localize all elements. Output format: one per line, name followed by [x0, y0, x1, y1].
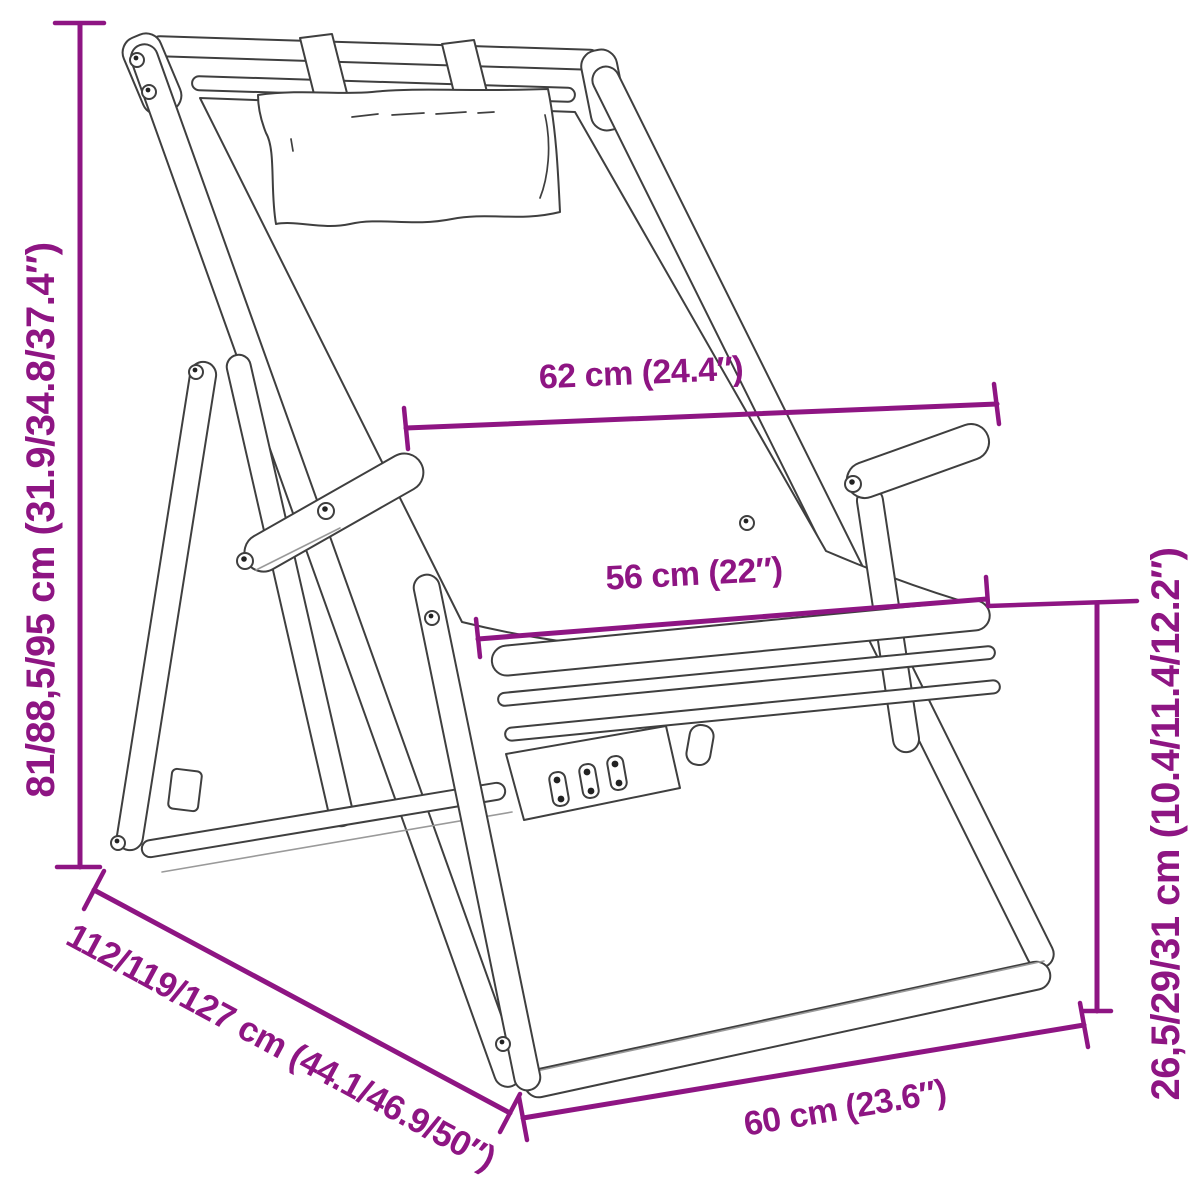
chair-drawing: [111, 28, 1058, 1099]
seat-latch-hook: [685, 723, 716, 767]
headrest-pillow: [258, 89, 560, 226]
chair-sketch: [0, 0, 1200, 1200]
dimension-diagram: 81/88,5/95 cm (31.9/34.8/37.4″) 62 cm (2…: [0, 0, 1200, 1200]
front-bottom-rail: [522, 959, 1053, 1100]
armrest-right: [842, 419, 994, 503]
dimension-line-seat-height: [988, 601, 1137, 1011]
dimension-label-height: 81/88,5/95 cm (31.9/34.8/37.4″): [21, 242, 61, 797]
dimension-label-seat-height: 26,5/29/31 cm (10.4/11.4/12.2″): [1146, 548, 1186, 1101]
dimension-label-seat-width: 56 cm (22″): [605, 552, 784, 595]
top-bar: [150, 36, 600, 70]
dimension-label-back-width: 62 cm (24.4″): [538, 352, 744, 395]
leg-bracket: [168, 768, 203, 811]
bottom-rail-edge: [532, 961, 1044, 1072]
